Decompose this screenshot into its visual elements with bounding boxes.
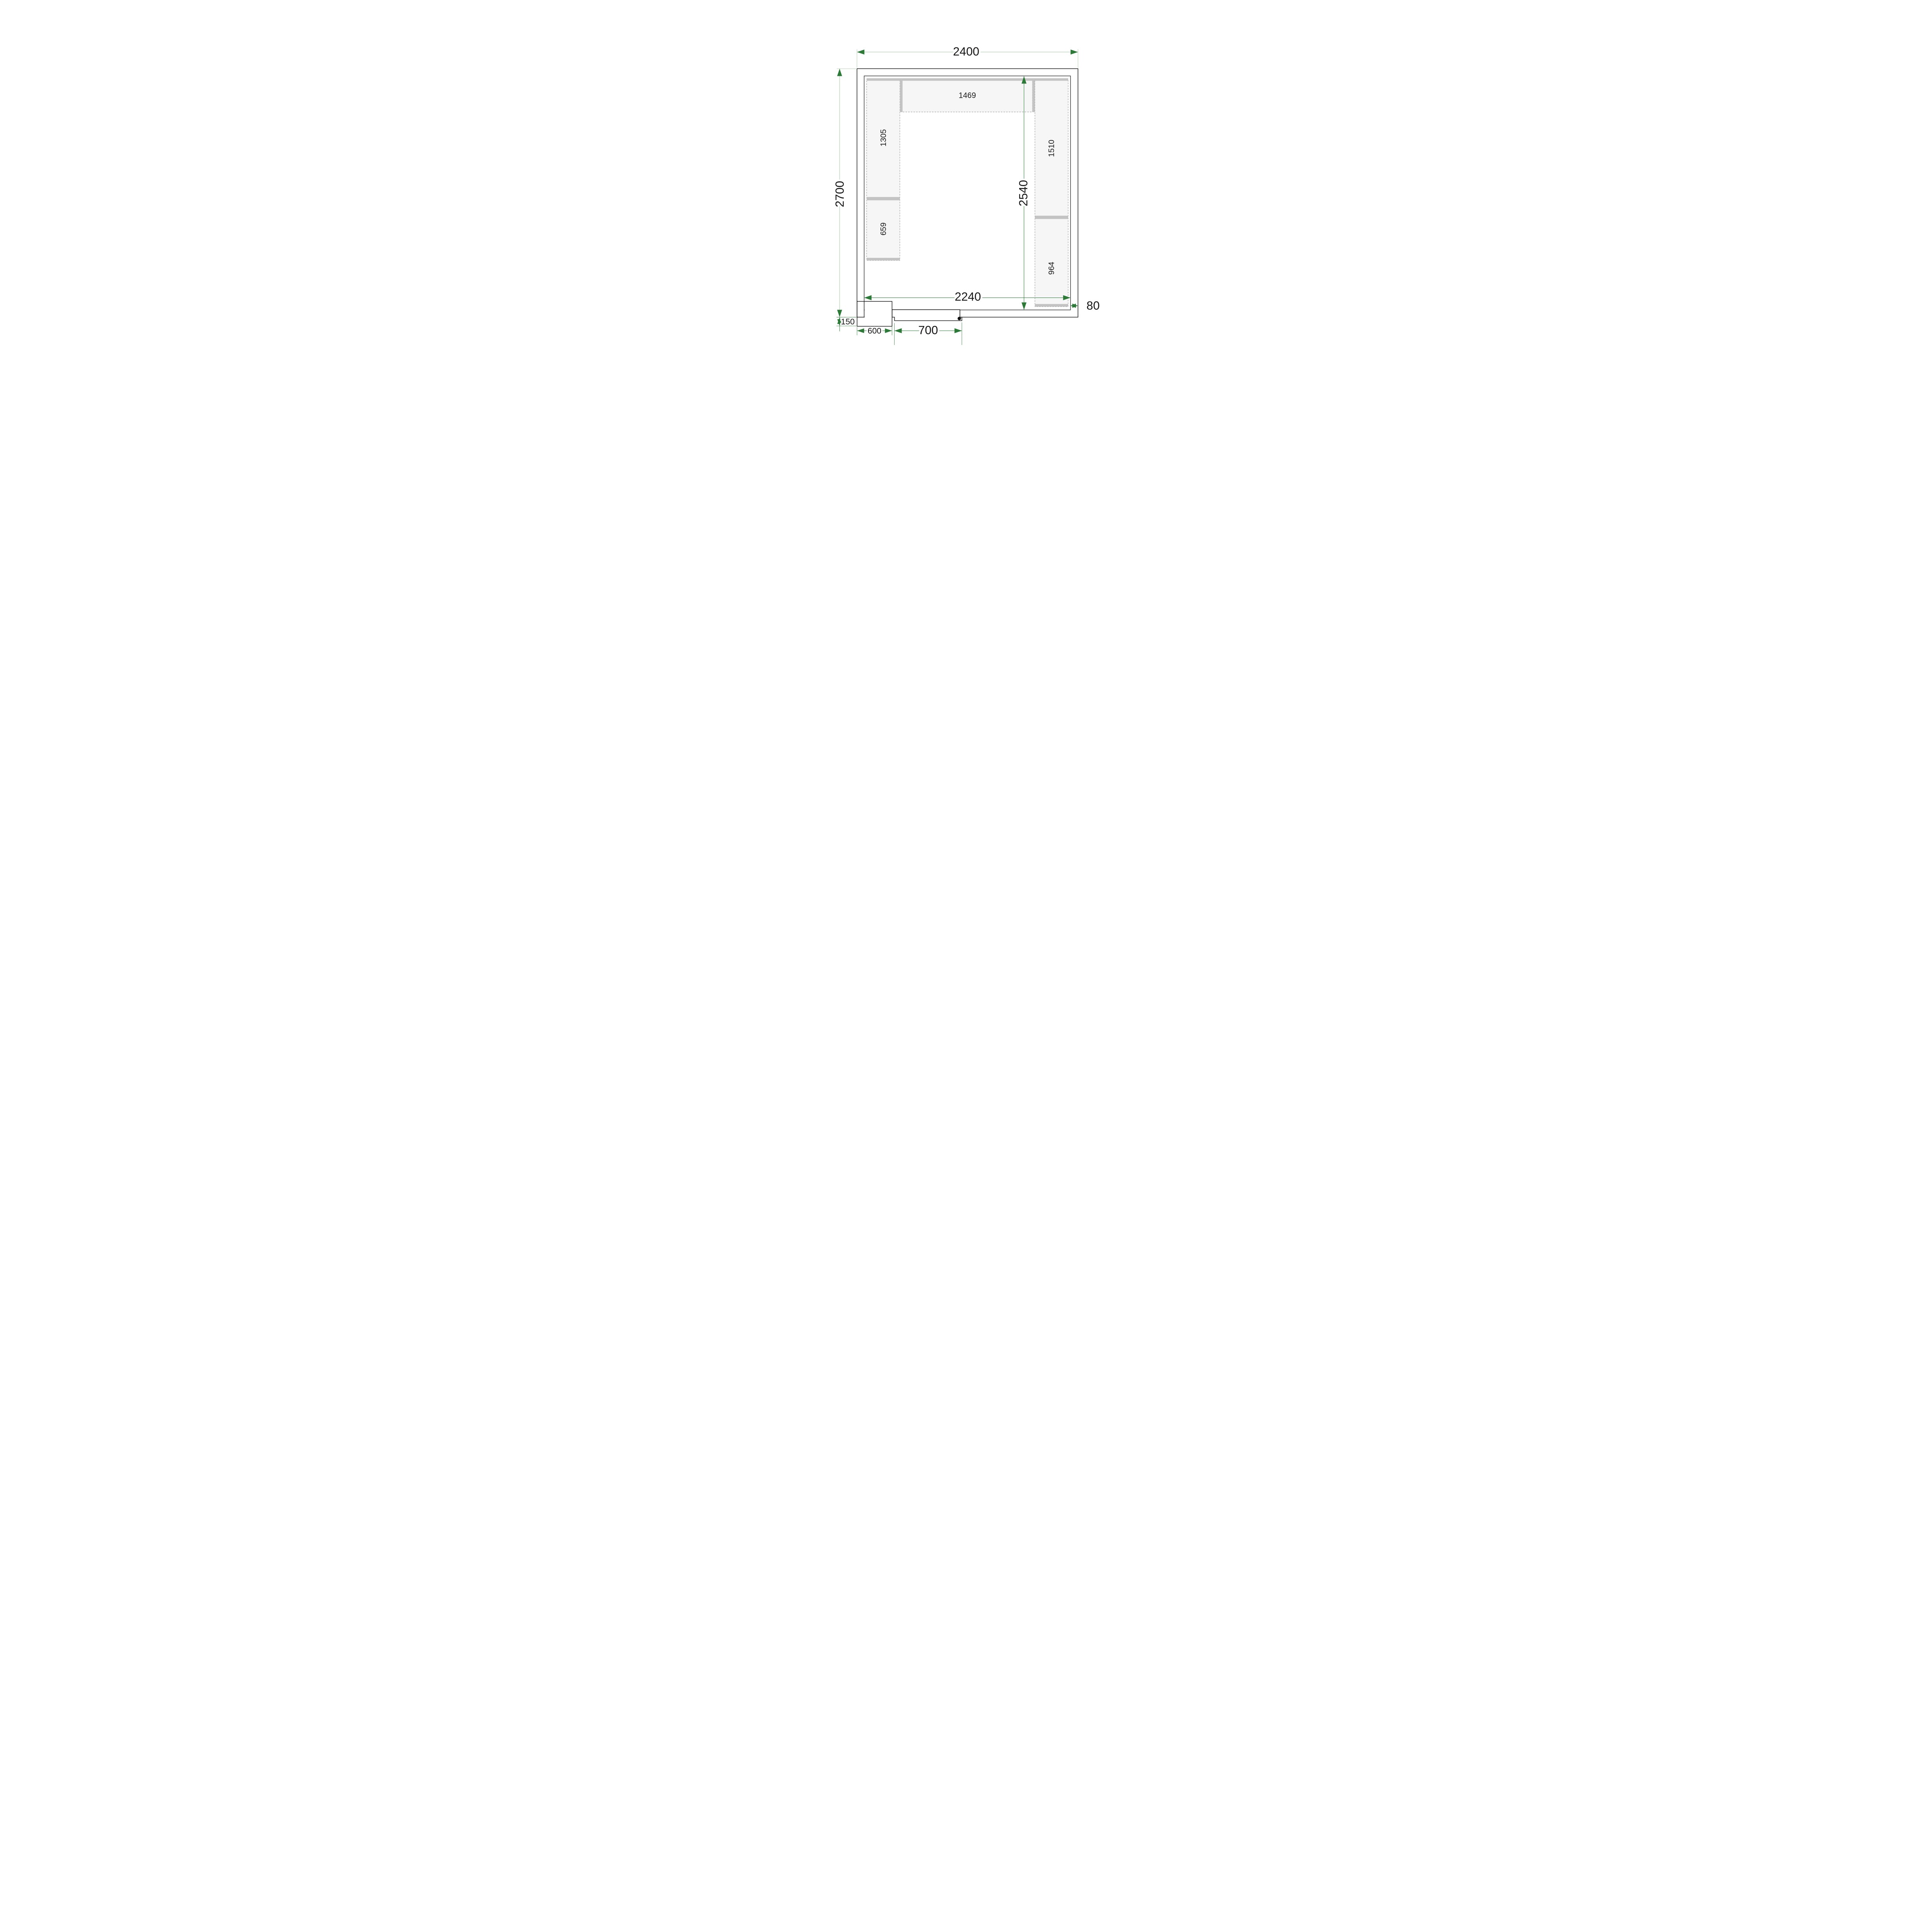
dim-2700-arrow-bottom: [837, 310, 842, 317]
dim-wall-thickness: 80: [1070, 299, 1099, 312]
dim-outer-width: 2400: [857, 45, 1078, 67]
right-lower-shelf-length-label: 964: [1047, 262, 1056, 275]
dim-2400-arrow-left: [857, 49, 864, 55]
dim-outer-height: 2700: [833, 69, 856, 317]
left-lower-shelf-length-label: 659: [879, 222, 888, 235]
dim-700-arrow-right: [954, 328, 962, 333]
dim-unit-protrusion: 150: [836, 317, 856, 331]
dim-150-label: 150: [841, 317, 854, 326]
right-shelf-bottom-band: [1035, 304, 1068, 307]
left-shelf-bottom-band: [866, 258, 900, 261]
dim-2540-label: 2540: [1017, 180, 1030, 206]
dim-2400-label: 2400: [953, 45, 979, 58]
dim-600-arrow-left: [857, 328, 864, 333]
dim-80-label: 80: [1086, 299, 1099, 312]
shelving: 1469 1305 659 1510 964: [866, 78, 1068, 306]
top-shelf-right-band: [1032, 79, 1035, 112]
dim-2240-label: 2240: [955, 290, 981, 303]
dim-2700-arrow-top: [837, 69, 842, 76]
door-opening: [865, 309, 960, 318]
dim-unit-width: 600: [857, 327, 892, 336]
dim-2700-label: 2700: [833, 181, 846, 208]
right-upper-shelf-length-label: 1510: [1047, 140, 1056, 157]
left-shelf-divider-band: [866, 197, 900, 200]
dim-door-width: 700: [894, 322, 962, 345]
right-shelf-divider-band: [1035, 216, 1068, 219]
dim-2240-arrow-left: [864, 295, 871, 300]
top-support-band: [866, 78, 1068, 81]
door-pivot-dot: [957, 317, 961, 320]
drawing-canvas: 1469 1305 659 1510 964 2400 2700 2240: [773, 0, 1159, 386]
dim-600-arrow-right: [885, 328, 892, 333]
cold-room-plan-svg: 1469 1305 659 1510 964 2400 2700 2240: [773, 0, 1159, 386]
left-upper-shelf-length-label: 1305: [879, 129, 888, 146]
top-shelf-left-band: [900, 79, 902, 112]
dim-2540-arrow-bottom: [1021, 302, 1027, 310]
dim-700-label: 700: [918, 324, 938, 337]
dim-2400-arrow-right: [1071, 49, 1078, 55]
dim-700-arrow-left: [894, 328, 902, 333]
dim-600-label: 600: [867, 327, 881, 336]
top-shelf-length-label: 1469: [958, 92, 976, 100]
